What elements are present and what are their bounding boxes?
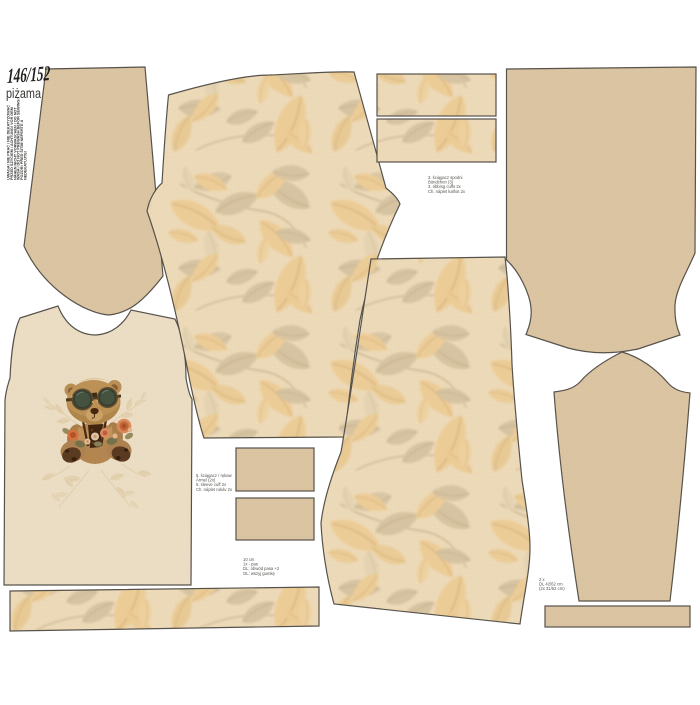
svg-text:Ch. náplet kalhot 2x: Ch. náplet kalhot 2x — [428, 189, 466, 194]
svg-text:Ch. náplet rukáv 2x: Ch. náplet rukáv 2x — [196, 487, 233, 492]
svg-text:NEDEKATUJTE!: NEDEKATUJTE! — [24, 151, 28, 180]
svg-text:(2x 31/62 cm): (2x 31/62 cm) — [539, 586, 565, 591]
svg-text:piżama: piżama — [6, 85, 41, 101]
svg-text:OL: wszyj gumkę: OL: wszyj gumkę — [243, 571, 276, 576]
svg-text:146/152: 146/152 — [7, 61, 51, 88]
